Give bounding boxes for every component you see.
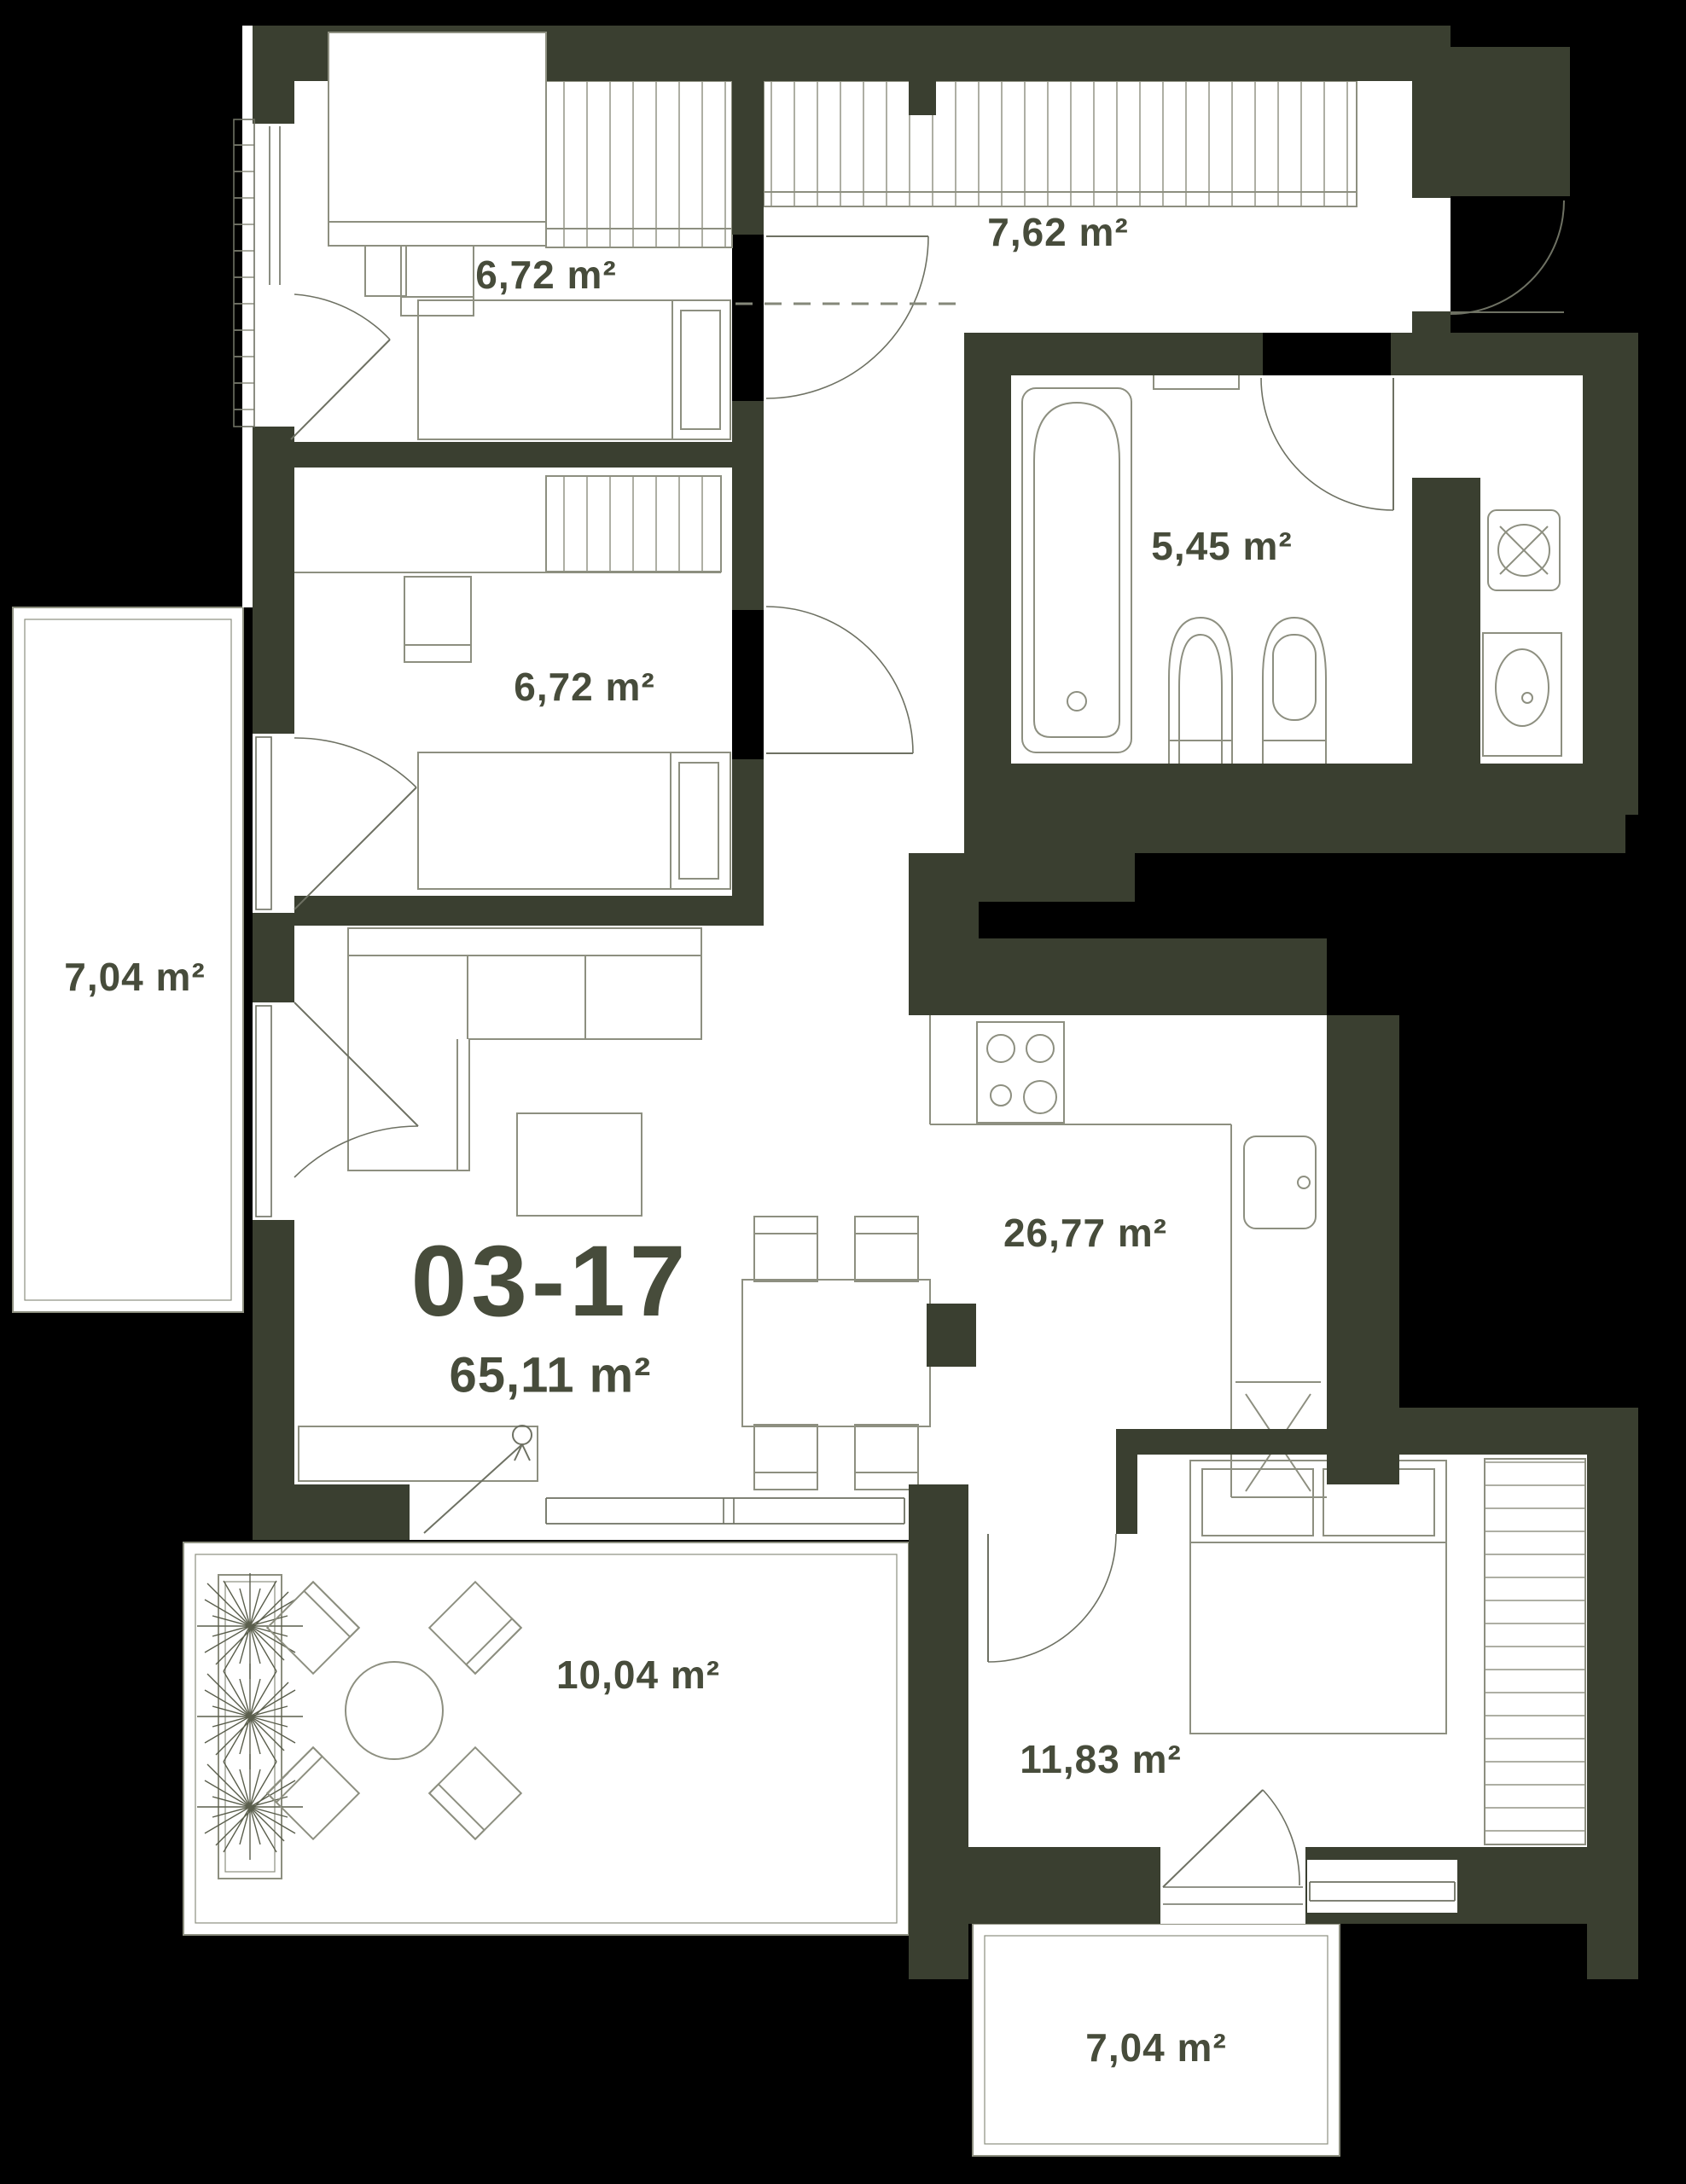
corridor-floor <box>764 333 964 926</box>
wardrobe-rail-bedroom-1 <box>546 81 732 247</box>
bedroom-3-door-landing <box>985 1484 1116 1534</box>
bedroom-1-window-bay <box>253 119 294 427</box>
unit-number: 03-17 <box>411 1223 690 1339</box>
room-label-bedroom-3: 11,83 m² <box>1020 1736 1182 1782</box>
room-label-balcony-bottom: 7,04 m² <box>1085 2024 1227 2071</box>
wardrobe-rail-bedroom-2 <box>546 476 721 572</box>
bathroom-floor <box>1011 375 1583 764</box>
wardrobe-rail-hallway <box>764 81 1357 206</box>
floorplan-svg <box>0 0 1686 2184</box>
bedroom-3-balcony-door-bay <box>1160 1847 1305 1924</box>
room-label-bathroom: 5,45 m² <box>1151 523 1293 569</box>
column <box>927 1304 976 1367</box>
shaft-notch <box>979 902 1135 938</box>
bedroom-2-balcony-door-bay <box>253 734 294 913</box>
closet-bedroom-1 <box>328 32 546 246</box>
room-label-living-kitchen: 26,77 m² <box>1003 1210 1167 1256</box>
terrace-door-band <box>410 1484 909 1540</box>
room-label-balcony-left: 7,04 m² <box>64 954 206 1000</box>
wardrobe-shelves-bedroom-3 <box>1485 1459 1585 1844</box>
entrance-door-bay <box>1412 198 1451 311</box>
room-label-bedroom-2: 6,72 m² <box>514 664 655 710</box>
room-label-hallway: 7,62 m² <box>987 209 1129 255</box>
floorplan-page: 6,72 m² 7,62 m² 5,45 m² 6,72 m² 7,04 m² … <box>0 0 1686 2184</box>
living-balcony-door-bay <box>253 1002 294 1220</box>
room-label-bedroom-1: 6,72 m² <box>475 252 617 298</box>
window-bedroom-3-bay <box>1307 1860 1457 1913</box>
room-label-terrace: 10,04 m² <box>556 1652 720 1698</box>
window-bedroom-1 <box>234 119 254 427</box>
unit-total-area: 65,11 m² <box>450 1347 652 1404</box>
